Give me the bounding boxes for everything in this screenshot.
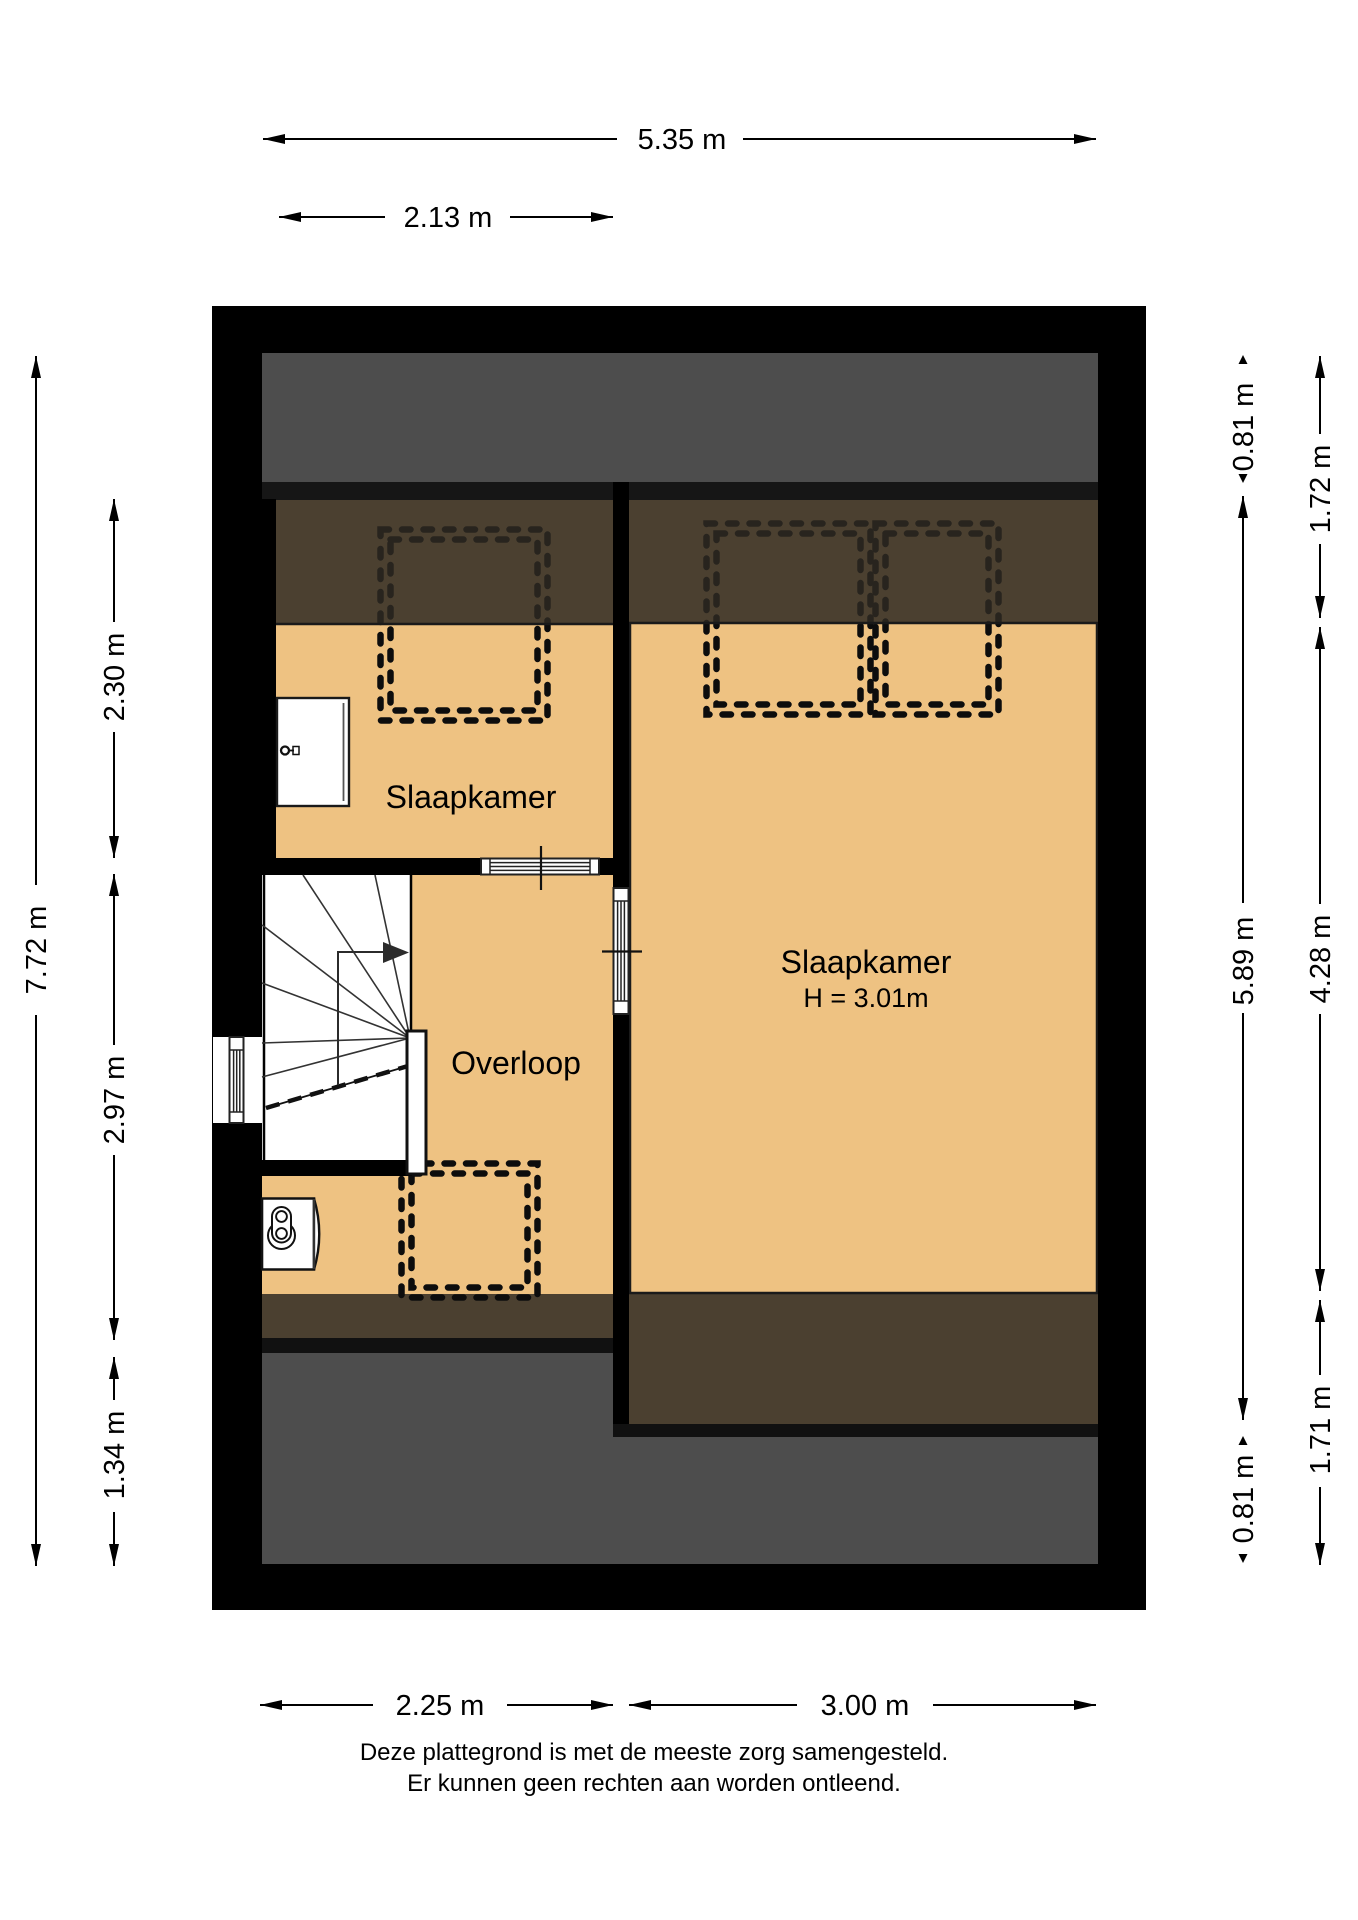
svg-text:5.35 m: 5.35 m	[638, 124, 727, 156]
svg-text:5.89 m: 5.89 m	[1228, 917, 1260, 1006]
svg-text:2.97 m: 2.97 m	[99, 1056, 131, 1145]
svg-text:7.72 m: 7.72 m	[21, 906, 53, 995]
svg-text:Er kunnen geen rechten aan wor: Er kunnen geen rechten aan worden ontlee…	[407, 1770, 901, 1797]
svg-text:0.81 m: 0.81 m	[1228, 383, 1260, 472]
svg-text:H = 3.01m: H = 3.01m	[803, 983, 928, 1013]
svg-text:0.81 m: 0.81 m	[1228, 1455, 1260, 1544]
svg-text:1.71 m: 1.71 m	[1305, 1386, 1337, 1475]
svg-text:2.30 m: 2.30 m	[99, 633, 131, 722]
svg-text:1.72 m: 1.72 m	[1305, 445, 1337, 534]
svg-text:2.13 m: 2.13 m	[404, 202, 493, 234]
svg-text:4.28 m: 4.28 m	[1305, 915, 1337, 1004]
svg-text:1.34 m: 1.34 m	[99, 1411, 131, 1500]
svg-text:Slaapkamer: Slaapkamer	[386, 779, 557, 815]
svg-text:Overloop: Overloop	[451, 1045, 581, 1081]
svg-text:Slaapkamer: Slaapkamer	[781, 944, 952, 980]
svg-text:3.00 m: 3.00 m	[821, 1690, 910, 1722]
svg-text:Deze plattegrond is met de mee: Deze plattegrond is met de meeste zorg s…	[360, 1739, 948, 1766]
svg-text:2.25 m: 2.25 m	[396, 1690, 485, 1722]
